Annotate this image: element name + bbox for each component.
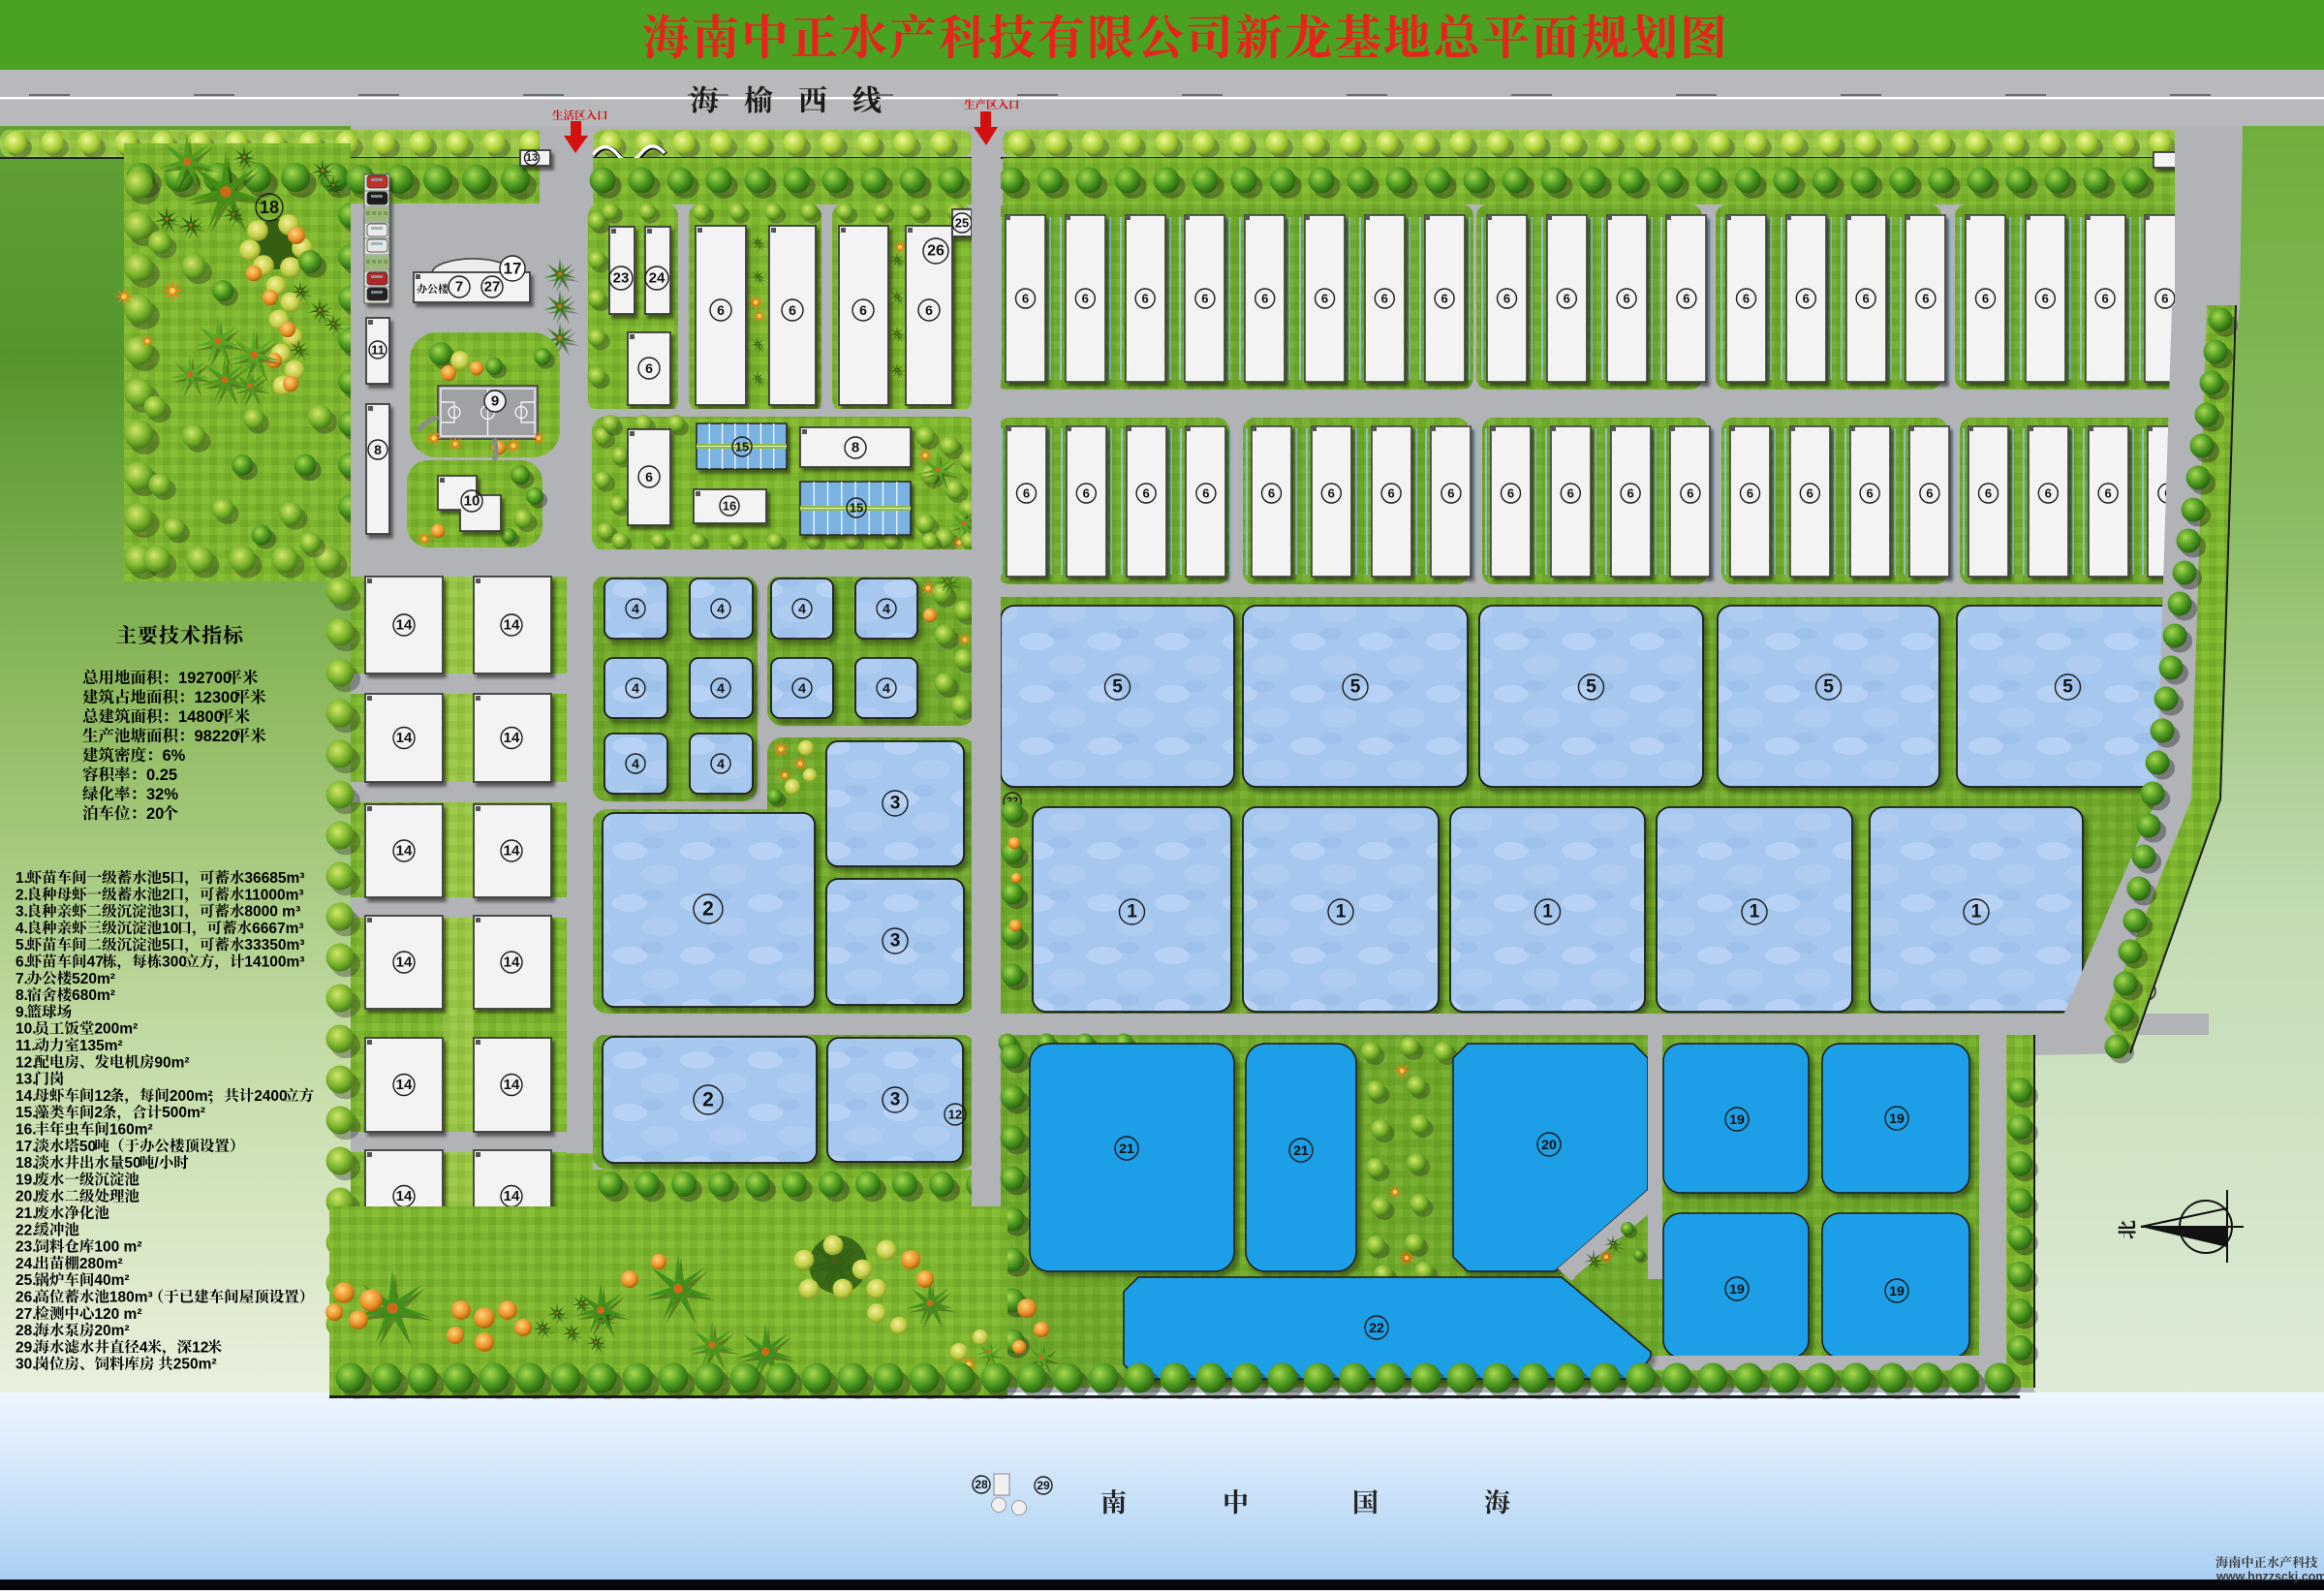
svg-text:50: 50 <box>124 1155 140 1172</box>
svg-text:5.: 5. <box>15 937 28 954</box>
svg-text:2400: 2400 <box>254 1088 287 1105</box>
svg-text:6667m³: 6667m³ <box>252 921 303 937</box>
svg-text:6: 6 <box>1807 486 1813 501</box>
svg-text:10: 10 <box>162 921 178 937</box>
svg-text:18.: 18. <box>15 1155 37 1172</box>
svg-text:22: 22 <box>1369 1320 1384 1335</box>
svg-text:15: 15 <box>735 440 749 454</box>
svg-text:15: 15 <box>850 501 863 516</box>
svg-text:6: 6 <box>645 360 653 376</box>
svg-text:4: 4 <box>798 601 806 616</box>
svg-text:98220: 98220 <box>195 728 239 745</box>
svg-text:12: 12 <box>948 1108 962 1122</box>
svg-text:3: 3 <box>162 904 170 921</box>
svg-text:19: 19 <box>1729 1111 1745 1127</box>
svg-text:6: 6 <box>1922 292 1929 306</box>
svg-text:11000m³: 11000m³ <box>244 887 303 903</box>
svg-text:6: 6 <box>1142 486 1149 501</box>
svg-text:23.: 23. <box>15 1239 37 1256</box>
svg-text:6: 6 <box>1567 486 1574 501</box>
svg-text:4: 4 <box>632 680 639 696</box>
svg-text:27.: 27. <box>15 1306 37 1323</box>
svg-text:33350m³: 33350m³ <box>244 937 304 954</box>
svg-text:50: 50 <box>79 1139 96 1155</box>
svg-text:32%: 32% <box>146 786 178 803</box>
svg-text:5: 5 <box>1586 677 1596 698</box>
svg-text:6: 6 <box>1268 486 1275 501</box>
svg-text:4: 4 <box>632 756 639 771</box>
svg-text:40m²: 40m² <box>94 1272 129 1289</box>
svg-text:6: 6 <box>1623 292 1629 306</box>
svg-text:100 m²: 100 m² <box>94 1239 141 1256</box>
svg-text:6: 6 <box>2161 292 2168 306</box>
svg-text:6: 6 <box>1743 292 1750 306</box>
svg-text:11: 11 <box>371 343 385 358</box>
svg-text:192700: 192700 <box>178 670 232 687</box>
svg-text:200m²: 200m² <box>94 1021 138 1038</box>
svg-text:5: 5 <box>2062 677 2073 698</box>
svg-text:8: 8 <box>852 440 859 456</box>
svg-text:90m²: 90m² <box>154 1054 189 1071</box>
svg-text:6: 6 <box>1564 292 1570 306</box>
svg-text:6: 6 <box>925 302 933 318</box>
svg-text:6: 6 <box>1201 292 1208 306</box>
svg-text:5: 5 <box>162 937 170 954</box>
svg-text:10: 10 <box>464 493 480 510</box>
svg-text:2: 2 <box>94 1105 103 1121</box>
svg-text:6: 6 <box>1985 486 1992 501</box>
svg-text:6: 6 <box>1503 292 1510 306</box>
svg-text:9.: 9. <box>15 1004 28 1020</box>
svg-text:6: 6 <box>1328 486 1335 501</box>
svg-text:13: 13 <box>526 152 538 164</box>
svg-text:30.: 30. <box>15 1357 37 1373</box>
svg-text:6: 6 <box>1141 292 1148 306</box>
svg-text:20: 20 <box>146 805 164 823</box>
svg-text:14800: 14800 <box>178 708 223 726</box>
svg-text:6: 6 <box>1381 292 1388 306</box>
svg-text:/: / <box>154 1155 159 1172</box>
svg-text:25: 25 <box>955 216 969 231</box>
svg-text:6: 6 <box>717 302 725 318</box>
svg-text:4: 4 <box>883 680 890 696</box>
svg-text:8.: 8. <box>15 987 28 1004</box>
svg-text:6: 6 <box>1866 486 1873 501</box>
svg-text:12.: 12. <box>15 1054 37 1071</box>
svg-text:29.: 29. <box>15 1339 37 1356</box>
svg-text:17.: 17. <box>15 1139 37 1155</box>
svg-text:19: 19 <box>1889 1283 1905 1298</box>
svg-text:12: 12 <box>94 1088 110 1105</box>
svg-text:24: 24 <box>649 270 666 287</box>
svg-text:5: 5 <box>1350 677 1361 698</box>
svg-text:28.: 28. <box>15 1323 37 1339</box>
svg-text:2: 2 <box>702 1089 714 1111</box>
svg-text:16.: 16. <box>15 1122 37 1139</box>
svg-text:1: 1 <box>1750 902 1760 923</box>
svg-text:1: 1 <box>1542 902 1553 923</box>
svg-text:19: 19 <box>1729 1281 1745 1297</box>
svg-text:14: 14 <box>504 617 520 634</box>
svg-text:28: 28 <box>975 1478 988 1491</box>
svg-text:6: 6 <box>1627 486 1633 501</box>
svg-text:7.: 7. <box>15 971 28 987</box>
svg-text:6: 6 <box>1023 486 1030 501</box>
svg-text:6: 6 <box>1387 486 1394 501</box>
svg-text:5: 5 <box>162 870 170 887</box>
svg-text:6: 6 <box>1862 292 1869 306</box>
svg-text:6%: 6% <box>163 747 186 765</box>
svg-text:6: 6 <box>1022 292 1029 306</box>
svg-text:500m²: 500m² <box>162 1105 205 1121</box>
svg-text:8000 m³: 8000 m³ <box>244 904 300 921</box>
svg-text:14.: 14. <box>15 1088 37 1105</box>
svg-text:26.: 26. <box>15 1290 37 1306</box>
svg-text:20.: 20. <box>15 1189 37 1205</box>
svg-text:4: 4 <box>717 680 725 696</box>
svg-text:12: 12 <box>192 1339 208 1356</box>
svg-text:3.: 3. <box>15 904 28 921</box>
svg-text:24.: 24. <box>15 1256 37 1272</box>
svg-text:15.: 15. <box>15 1105 37 1121</box>
svg-text:21: 21 <box>1119 1141 1134 1156</box>
svg-text:6: 6 <box>1747 486 1753 501</box>
svg-text:36685m³: 36685m³ <box>244 870 304 887</box>
svg-text:2: 2 <box>702 898 714 921</box>
svg-text:47: 47 <box>87 954 104 971</box>
svg-text:4: 4 <box>717 601 725 616</box>
svg-text:14: 14 <box>396 843 413 860</box>
svg-text:6: 6 <box>2042 292 2049 306</box>
svg-text:680m²: 680m² <box>72 987 115 1004</box>
svg-text:6: 6 <box>1261 292 1268 306</box>
svg-text:14: 14 <box>396 730 413 746</box>
svg-text:12300: 12300 <box>195 689 239 706</box>
svg-text:4: 4 <box>139 1339 148 1356</box>
svg-text:6: 6 <box>1507 486 1514 501</box>
svg-text:6: 6 <box>1926 486 1933 501</box>
svg-text:6: 6 <box>1447 486 1454 501</box>
svg-text:6: 6 <box>1683 292 1689 306</box>
svg-text:4: 4 <box>883 601 890 616</box>
svg-text:21: 21 <box>1293 1142 1309 1158</box>
svg-text:250m²: 250m² <box>173 1357 217 1373</box>
svg-text:6.: 6. <box>15 954 28 971</box>
svg-text:3: 3 <box>890 794 901 814</box>
svg-text:280m²: 280m² <box>79 1256 123 1272</box>
svg-text:6: 6 <box>1082 292 1089 306</box>
svg-text:5: 5 <box>1823 677 1834 698</box>
svg-text:23: 23 <box>613 270 630 287</box>
svg-text:14: 14 <box>396 954 413 971</box>
svg-text:11.: 11. <box>15 1038 36 1054</box>
svg-text:29: 29 <box>1037 1479 1050 1492</box>
svg-text:10.: 10. <box>15 1021 37 1038</box>
svg-text:16: 16 <box>723 499 736 514</box>
svg-text:6: 6 <box>1803 292 1810 306</box>
svg-text:8: 8 <box>374 442 382 457</box>
svg-text:6: 6 <box>1982 292 1989 306</box>
svg-text:6: 6 <box>1687 486 1693 501</box>
svg-text:4: 4 <box>717 756 725 771</box>
svg-text:14: 14 <box>504 1188 520 1204</box>
svg-text:6: 6 <box>2101 292 2108 306</box>
svg-text:5: 5 <box>1112 677 1123 698</box>
svg-text:0.25: 0.25 <box>146 766 177 784</box>
svg-text:20: 20 <box>1541 1137 1557 1152</box>
svg-text:21.: 21. <box>15 1205 37 1222</box>
svg-text:120 m²: 120 m² <box>94 1306 141 1323</box>
svg-text:14100m³: 14100m³ <box>244 954 304 971</box>
svg-text:14: 14 <box>396 617 413 634</box>
svg-text:14: 14 <box>504 843 520 860</box>
svg-text:6: 6 <box>789 302 796 318</box>
svg-text:2.: 2. <box>15 887 28 903</box>
svg-text:25.: 25. <box>15 1272 37 1289</box>
svg-text:300: 300 <box>162 954 187 971</box>
svg-text:6: 6 <box>1321 292 1328 306</box>
svg-text:18: 18 <box>260 198 279 217</box>
svg-text:4.: 4. <box>15 921 28 937</box>
svg-text:27: 27 <box>484 279 501 296</box>
svg-text:6: 6 <box>1083 486 1090 501</box>
svg-text:26: 26 <box>927 243 945 260</box>
svg-text:17: 17 <box>504 260 522 278</box>
svg-text:3: 3 <box>890 931 901 952</box>
svg-text:13.: 13. <box>15 1072 37 1088</box>
svg-text:160m²: 160m² <box>109 1122 153 1139</box>
svg-text:6: 6 <box>2045 486 2052 501</box>
svg-text:14: 14 <box>396 1188 413 1204</box>
svg-text:3: 3 <box>890 1090 901 1110</box>
svg-text:22.: 22. <box>15 1222 37 1238</box>
svg-text:6: 6 <box>1202 486 1209 501</box>
svg-text:www.hnzzsckj.com: www.hnzzsckj.com <box>2216 1570 2324 1583</box>
svg-text:19: 19 <box>1889 1110 1905 1126</box>
svg-text:6: 6 <box>859 302 867 318</box>
svg-text:14: 14 <box>504 730 520 746</box>
svg-text:6: 6 <box>2104 486 2111 501</box>
svg-text:6: 6 <box>645 469 653 485</box>
svg-text:14: 14 <box>504 1077 520 1093</box>
svg-text:20m²: 20m² <box>94 1323 129 1339</box>
svg-text:1: 1 <box>1971 902 1982 923</box>
svg-text:14: 14 <box>396 1077 413 1093</box>
svg-text:1.: 1. <box>15 870 28 887</box>
svg-text:7: 7 <box>455 279 463 296</box>
svg-text:135m²: 135m² <box>79 1038 123 1054</box>
svg-text:9: 9 <box>491 393 499 410</box>
svg-text:2: 2 <box>162 887 170 903</box>
svg-text:4: 4 <box>798 680 806 696</box>
svg-text:1: 1 <box>1127 902 1137 923</box>
svg-text:180m³: 180m³ <box>109 1290 153 1306</box>
svg-text:200m²: 200m² <box>170 1088 213 1105</box>
svg-text:6: 6 <box>1441 292 1447 306</box>
svg-text:520m²: 520m² <box>72 971 115 987</box>
svg-text:19.: 19. <box>15 1172 37 1188</box>
svg-text:14: 14 <box>504 954 520 971</box>
svg-text:4: 4 <box>632 601 639 616</box>
svg-text:1: 1 <box>1336 902 1347 923</box>
